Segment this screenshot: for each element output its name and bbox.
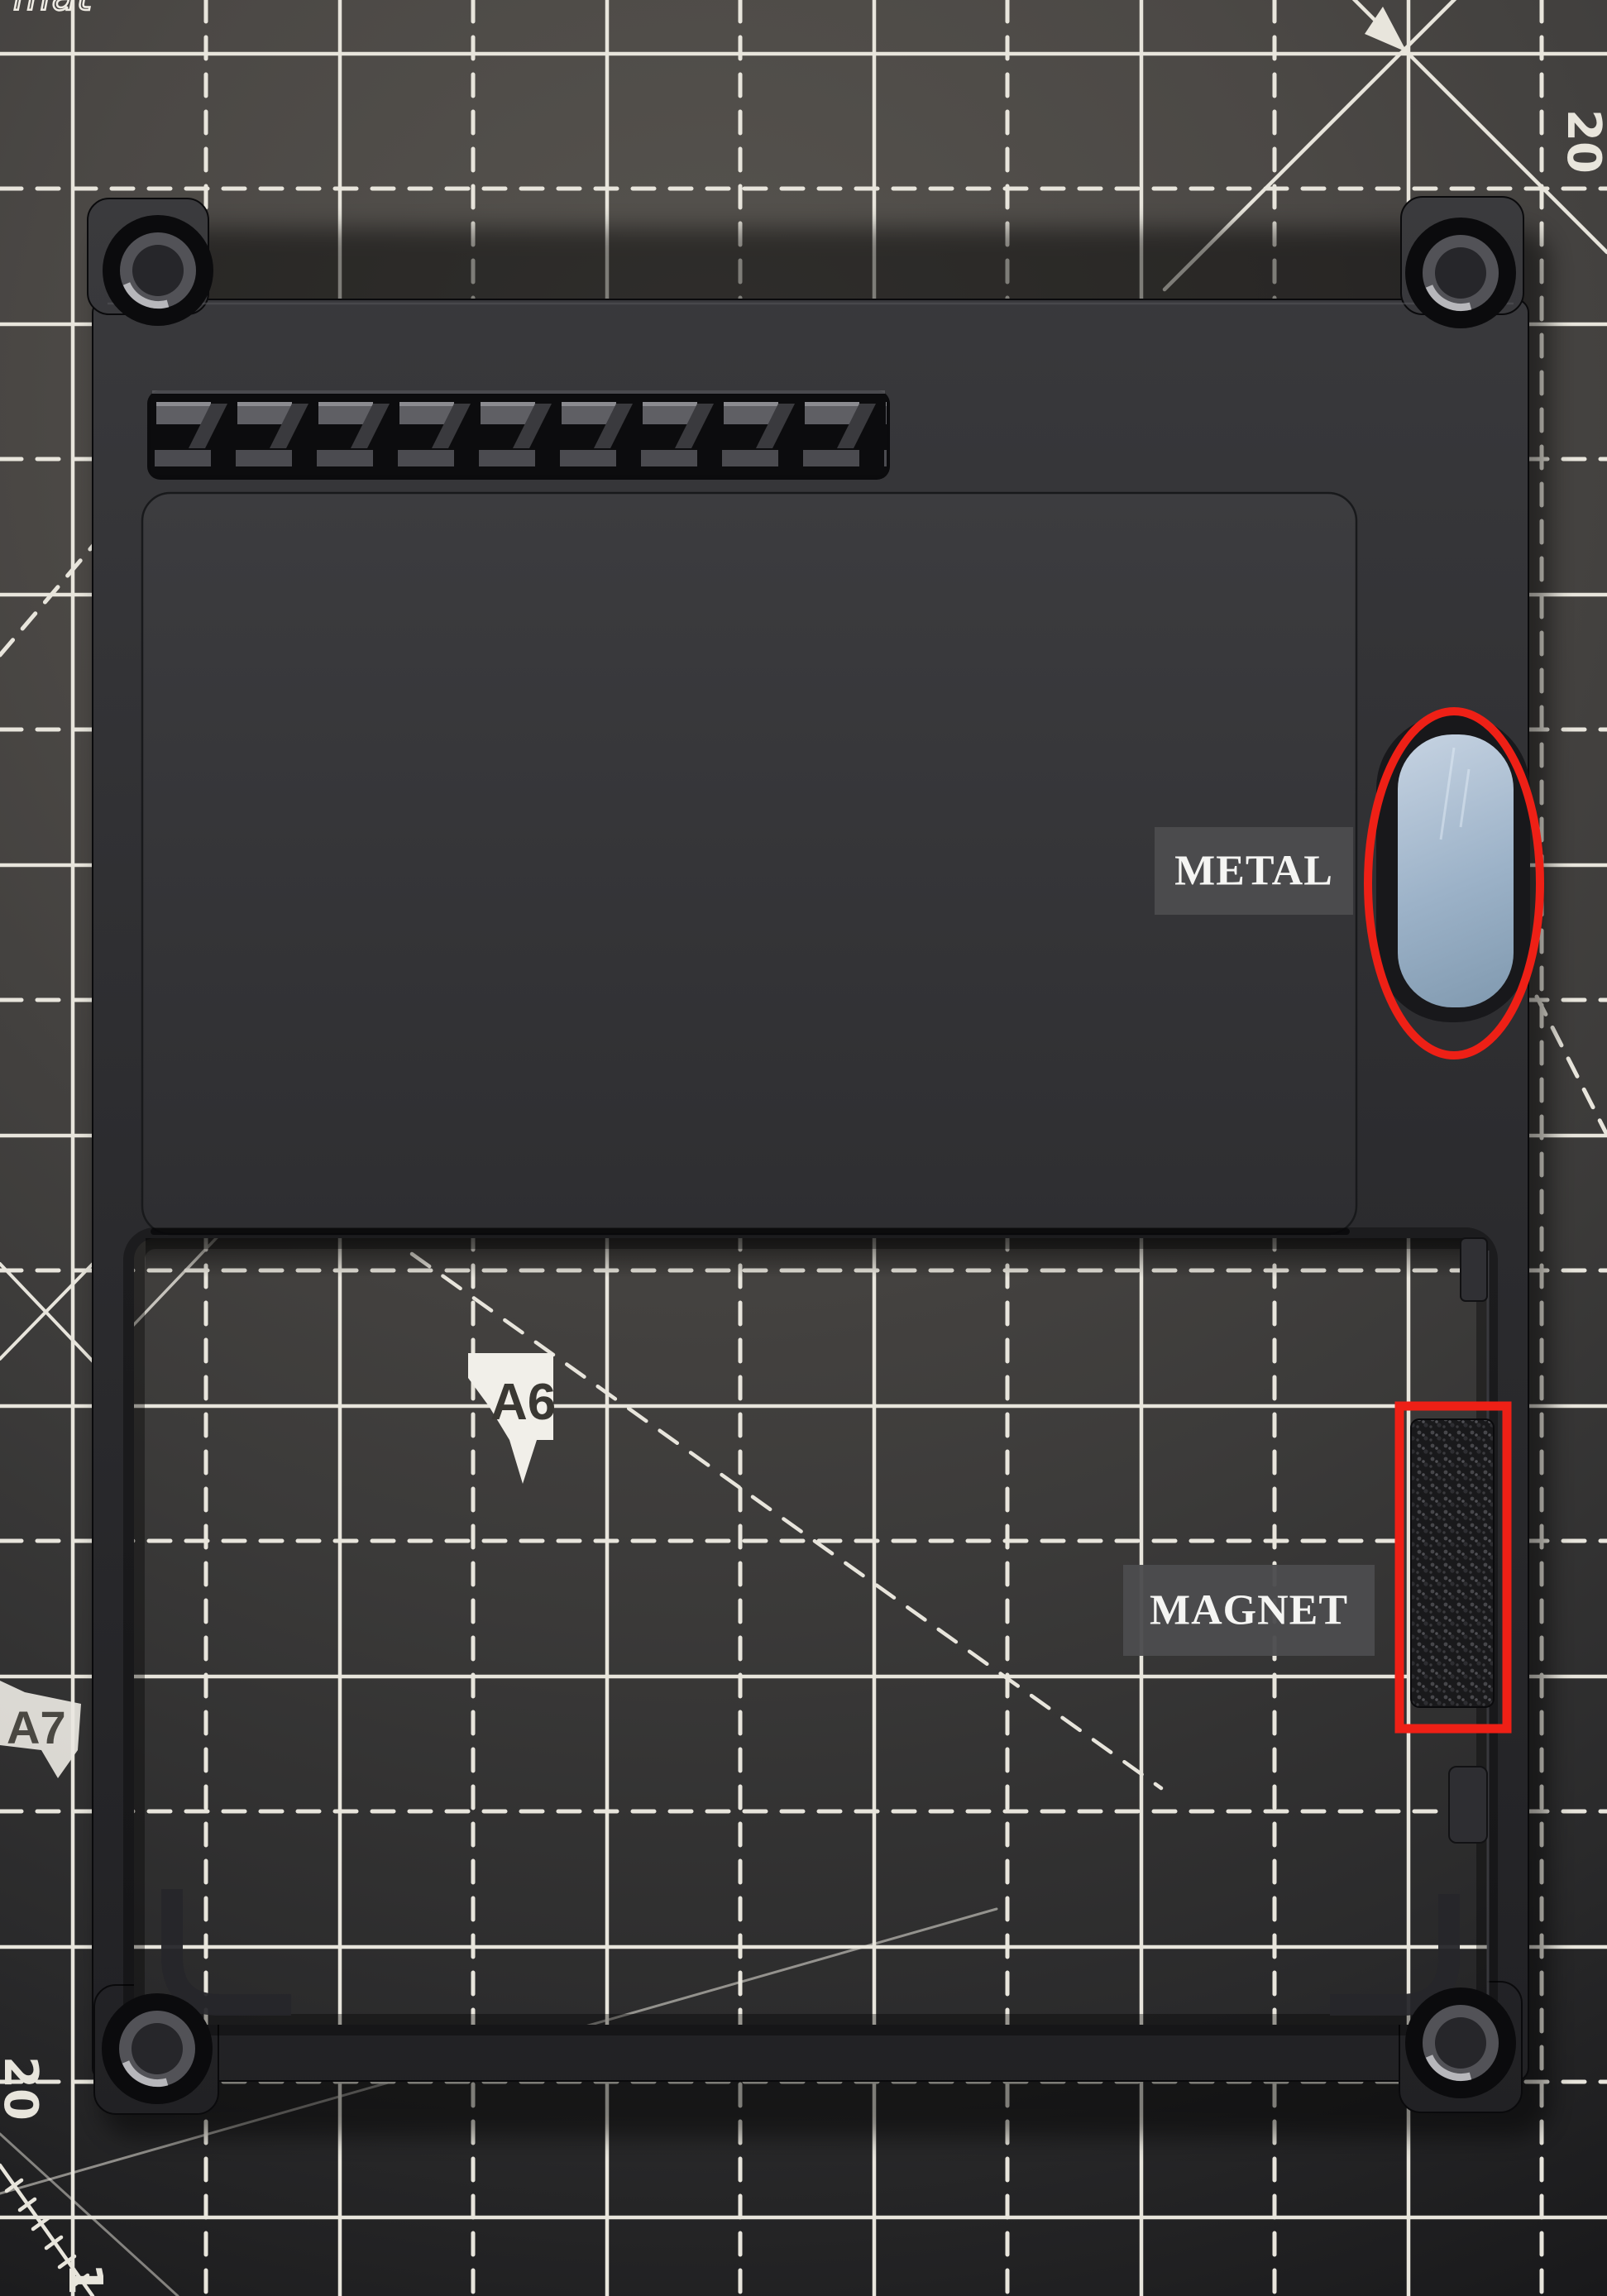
screw-hole-bottom-right <box>1405 1987 1516 2098</box>
vent-slots <box>147 390 890 480</box>
window-top-shade <box>146 1238 1475 1278</box>
metal-plate <box>1398 734 1514 1007</box>
device-chassis <box>0 0 1607 2296</box>
photo-canvas: A6 A7 20 20 10 mat <box>0 0 1607 2296</box>
frame-bracket <box>1449 1767 1487 1843</box>
screw-hole-top-left <box>103 215 213 326</box>
frame-tab <box>1461 1238 1487 1301</box>
annotated-photo: A6 A7 20 20 10 mat <box>0 0 1607 2296</box>
magnet-label-text: MAGNET <box>1150 1587 1348 1634</box>
magnet-strip <box>1411 1419 1494 1707</box>
magnet-label: MAGNET <box>1123 1565 1375 1656</box>
metal-label-text: METAL <box>1174 848 1333 895</box>
screw-hole-top-right <box>1405 218 1516 328</box>
screw-hole-bottom-left <box>102 1993 213 2104</box>
metal-label: METAL <box>1155 827 1353 915</box>
